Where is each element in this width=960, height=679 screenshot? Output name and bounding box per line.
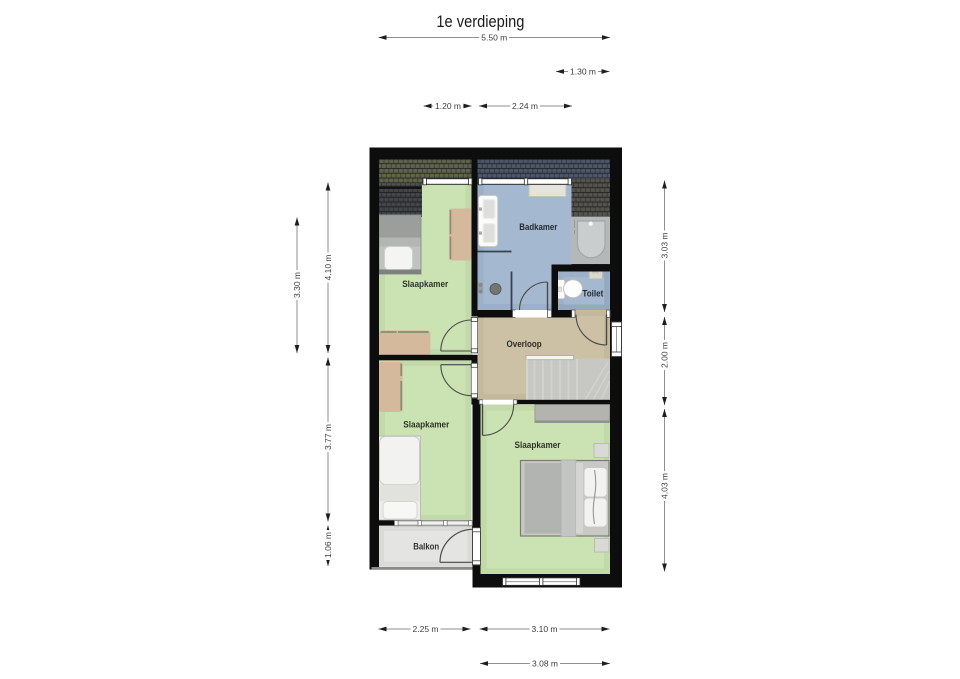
svg-text:4.10 m: 4.10 m (323, 255, 333, 281)
svg-text:1e verdieping: 1e verdieping (436, 12, 524, 31)
svg-text:3.77 m: 3.77 m (323, 424, 333, 450)
svg-text:3.30 m: 3.30 m (292, 272, 302, 298)
svg-text:1.20 m: 1.20 m (435, 101, 461, 111)
svg-text:3.03 m: 3.03 m (659, 233, 669, 259)
svg-text:3.08 m: 3.08 m (532, 658, 558, 668)
svg-text:2.24 m: 2.24 m (512, 101, 538, 111)
svg-text:Badkamer: Badkamer (519, 222, 557, 233)
svg-text:2.00 m: 2.00 m (659, 342, 669, 368)
svg-text:Slaapkamer: Slaapkamer (515, 440, 561, 451)
svg-text:1.06 m: 1.06 m (323, 532, 333, 558)
svg-text:Overloop: Overloop (507, 339, 542, 350)
svg-text:Toilet: Toilet (582, 288, 604, 299)
svg-text:3.10 m: 3.10 m (532, 624, 558, 634)
svg-text:1.30 m: 1.30 m (570, 66, 596, 76)
svg-text:Slaapkamer: Slaapkamer (402, 279, 448, 290)
svg-text:2.25 m: 2.25 m (413, 624, 439, 634)
svg-text:4.03 m: 4.03 m (659, 473, 669, 499)
svg-text:Balkon: Balkon (413, 542, 439, 553)
svg-text:Slaapkamer: Slaapkamer (403, 420, 449, 431)
svg-text:5.50 m: 5.50 m (481, 32, 507, 42)
